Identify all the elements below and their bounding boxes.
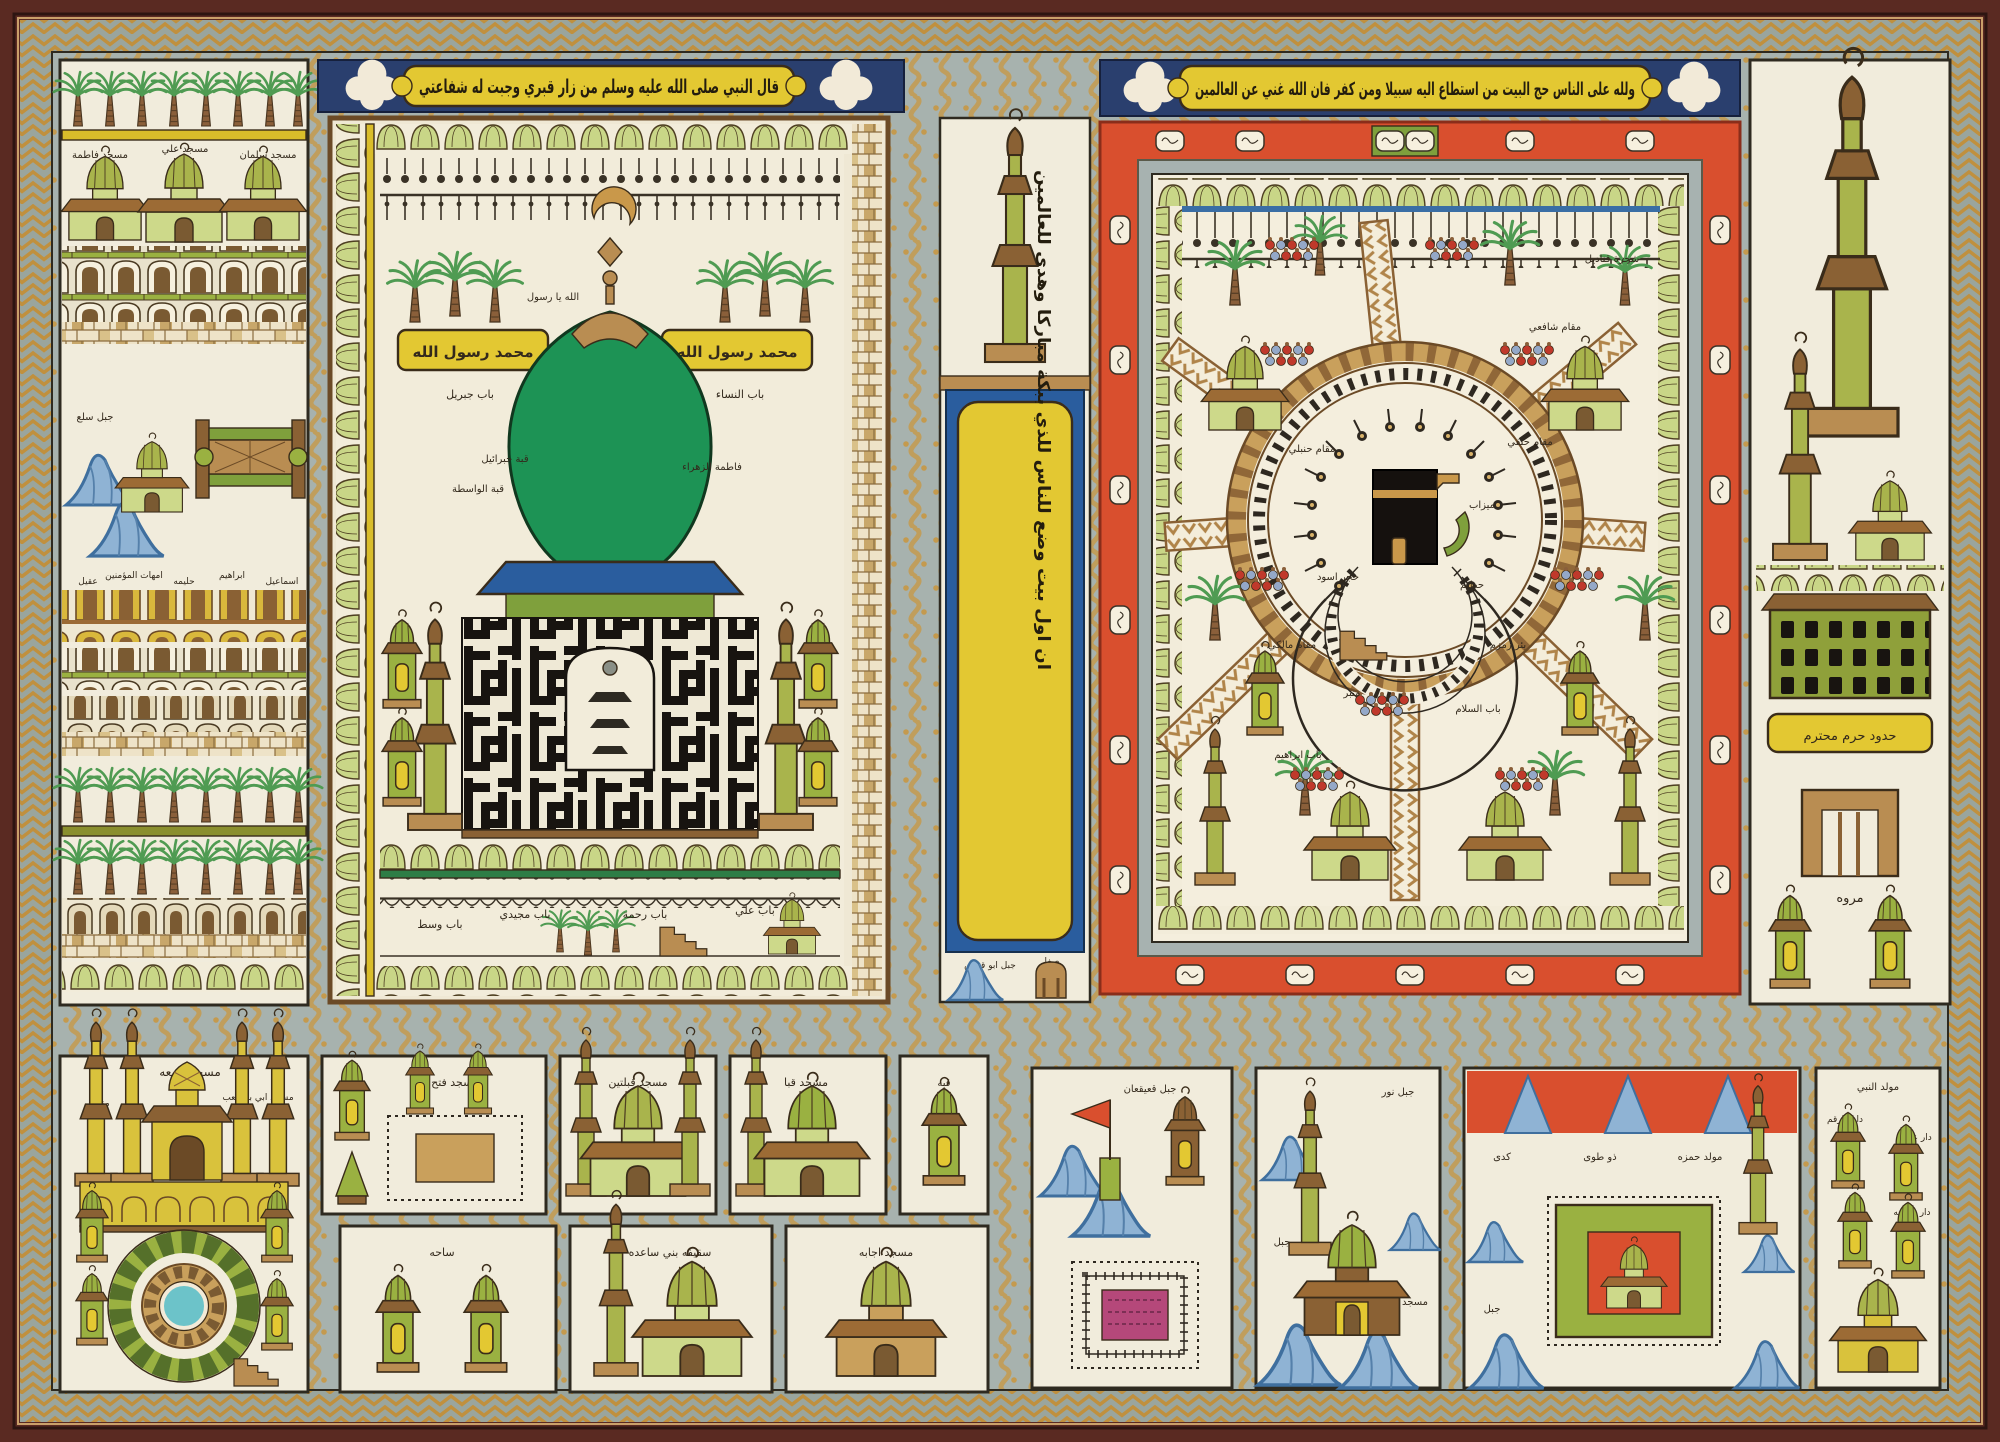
quba-mosque-vignette: مسجد جمعه مسجد ابي بن كعب مناره	[60, 1009, 308, 1392]
row2-label-1: سقيفه بني ساعده	[629, 1246, 712, 1259]
gold-divider	[62, 130, 306, 140]
dome-arcade-bottom	[1156, 906, 1684, 934]
kufic-facade	[462, 618, 758, 838]
finial-inscription: الله يا رسول	[527, 292, 579, 303]
dome-roofline	[1756, 565, 1944, 591]
mecca-verse-inscription: ولله على الناس حج البيت من استطاع اليه س…	[1195, 79, 1635, 100]
qubbat-jibril-label: قبة جبرائيل	[481, 454, 528, 465]
arcade-row	[62, 648, 306, 690]
mecca-panel: ولله على الناس حج البيت من استطاع اليه س…	[1100, 60, 1740, 994]
medina-title-band: قال النبي صلى الله عليه وسلم من زار قبري…	[318, 60, 904, 112]
mosque-row: مسجد فاطمة مسجد علي مسجد سلمان	[61, 143, 306, 242]
brick-border-right	[852, 124, 882, 996]
dome-arcade-band	[62, 962, 306, 992]
dome-border-bottom	[336, 966, 882, 996]
bab-jibril-label: باب جبريل	[446, 388, 494, 401]
brick-band	[62, 732, 306, 756]
row1-vignette-qiblatain: مسجد قبلتين	[560, 1027, 716, 1214]
bab-salam-label: باب السلام	[1455, 704, 1500, 715]
tomb-label: امهات المؤمنين	[105, 571, 163, 581]
nur-left-label: جبل	[1274, 1237, 1291, 1248]
arcade-tier	[62, 246, 306, 284]
mecca-title-band: ولله على الناس حج البيت من استطاع اليه س…	[1100, 60, 1740, 116]
qubbat-wasita-label: قبة الواسطة	[452, 484, 504, 495]
leaf-border-left	[336, 124, 366, 996]
row1-vignette-qubba: قبه	[900, 1056, 988, 1214]
mizab-label: ميزاب	[1469, 500, 1495, 511]
hanafi-label: مقام حنفي	[1507, 437, 1552, 448]
left-column-vignettes: مسجد فاطمة مسجد علي مسجد سلمان جبل سلع ع…	[54, 60, 322, 1005]
side-verse-inscription: ان اول بيت وضع للناس للذي ببكة مباركا وه…	[1033, 170, 1053, 670]
drum-lantern-icon	[195, 420, 307, 498]
haram-limit-cartouche: حدود حرم محترم	[1768, 714, 1932, 752]
tomb-label: اسماعيل	[266, 577, 299, 587]
minbar-label: منبر	[1343, 688, 1361, 699]
green-drum-band	[506, 594, 714, 618]
shafii-label: مقام شافعي	[1529, 322, 1581, 333]
window-building	[1770, 610, 1930, 698]
bab-ali-label: باب علي	[735, 904, 775, 917]
qaiqian-label: جبل قعيقعان	[1124, 1084, 1177, 1095]
fatima-label: فاطمة الزهراء	[682, 462, 742, 473]
bab-nisa-label: باب النساء	[716, 388, 764, 401]
arcade-tier	[62, 284, 306, 322]
jabal-sala-label: جبل سلع	[77, 412, 114, 423]
row2-label-0: ساحه	[429, 1246, 454, 1259]
gold-rule	[366, 124, 374, 996]
bab-ibrahim-label: باب ابراهيم	[1274, 750, 1321, 761]
marwa-label: مروه	[1836, 891, 1863, 906]
rope-divider	[940, 376, 1090, 390]
tomb-enclosure-icon	[1072, 1262, 1198, 1368]
dome-arcade-left	[1156, 206, 1182, 910]
row2-vignette-saha: ساحه	[340, 1226, 556, 1392]
mosque-label: مسجد علي	[162, 144, 209, 155]
dhu-tuwa-vignette: كدى ذو طوى مولد حمزه جبل	[1464, 1068, 1800, 1388]
mina-b-label: ذو طوى	[1583, 1152, 1616, 1163]
row2-vignette-ijaba: مسجد اجابه	[786, 1226, 988, 1392]
hanbali-label: مقام حنبلي	[1289, 444, 1336, 455]
blue-eave-roof	[478, 562, 742, 594]
hajj-pilgrimage-painting: مسجد فاطمة مسجد علي مسجد سلمان جبل سلع ع…	[0, 0, 2000, 1442]
brick-band	[62, 322, 306, 344]
dome-arcade-top	[1156, 178, 1684, 206]
jabal-nur-vignette: جبل نور جبل مسجد	[1256, 1068, 1441, 1388]
hatim-label: حطيم	[1460, 580, 1484, 591]
row1-label-2: مسجد قبا	[784, 1076, 828, 1089]
kalima-left-cartouche: محمد رسول الله	[412, 343, 533, 361]
bab-majidi-label: باب مجيدي	[500, 908, 551, 921]
crenellation-band	[62, 898, 306, 934]
maliki-label: مقام مالكي	[1268, 640, 1316, 651]
nur-title-label: جبل نور	[1381, 1087, 1415, 1098]
row1-vignette-fath: مسجد فتح	[322, 1044, 546, 1214]
hajar-label: حجر اسود	[1317, 572, 1359, 583]
right-column-vignettes: حدود حرم محترم مروه	[1750, 48, 1950, 1004]
tomb-label: عقيل	[78, 577, 97, 587]
row1-vignette-quba2: مسجد قبا	[730, 1027, 886, 1214]
mawlid-vignette: مولد النبي دار الارقم دار عباس دار خديجه	[1816, 1068, 1940, 1388]
green-bar	[380, 870, 840, 878]
kaaba-door-icon	[1392, 538, 1406, 564]
central-strip: ان اول بيت وضع للناس للذي ببكة مباركا وه…	[940, 109, 1090, 1002]
dome-arcade-row	[380, 842, 840, 870]
medina-panel: قال النبي صلى الله عليه وسلم من زار قبري…	[318, 60, 904, 1002]
bab-wasat-label: باب وسط	[417, 918, 462, 931]
green-enclosure-icon	[1548, 1197, 1720, 1345]
medina-hadith-inscription: قال النبي صلى الله عليه وسلم من زار قبري…	[419, 76, 779, 99]
mina-c-label: مولد حمزه	[1678, 1152, 1723, 1163]
brick-band	[62, 934, 306, 958]
dome-border-top	[336, 124, 882, 154]
kalima-right-cartouche: محمد رسول الله	[676, 343, 797, 361]
haram-limit-label: حدود حرم محترم	[1804, 729, 1897, 744]
blue-rule	[1182, 206, 1660, 212]
quaiqian-vignette: جبل قعيقعان	[1032, 1068, 1232, 1388]
mawlid-a-label: مولد النبي	[1857, 1082, 1899, 1093]
bab-rahma-label: باب رحمة	[623, 908, 668, 921]
nur-right-label: مسجد	[1402, 1297, 1428, 1308]
tomb-label: ابراهيم	[219, 571, 245, 581]
mina-a-label: كدى	[1493, 1152, 1511, 1163]
olive-divider	[62, 826, 306, 836]
dome-arcade-right	[1658, 206, 1684, 910]
crenellation-band	[62, 696, 306, 732]
qanadil-label: شجرة قناديل	[1585, 254, 1639, 265]
painting-canvas: مسجد فاطمة مسجد علي مسجد سلمان جبل سلع ع…	[0, 0, 2000, 1442]
eave	[1762, 594, 1938, 610]
safa-gate-icon	[1036, 962, 1066, 998]
mina-d-label: جبل	[1484, 1304, 1501, 1315]
zamzam-label: بئر زمزم	[1490, 640, 1526, 651]
tomb-label: حليمه	[173, 577, 194, 587]
kiswa-gold-band	[1373, 490, 1437, 498]
